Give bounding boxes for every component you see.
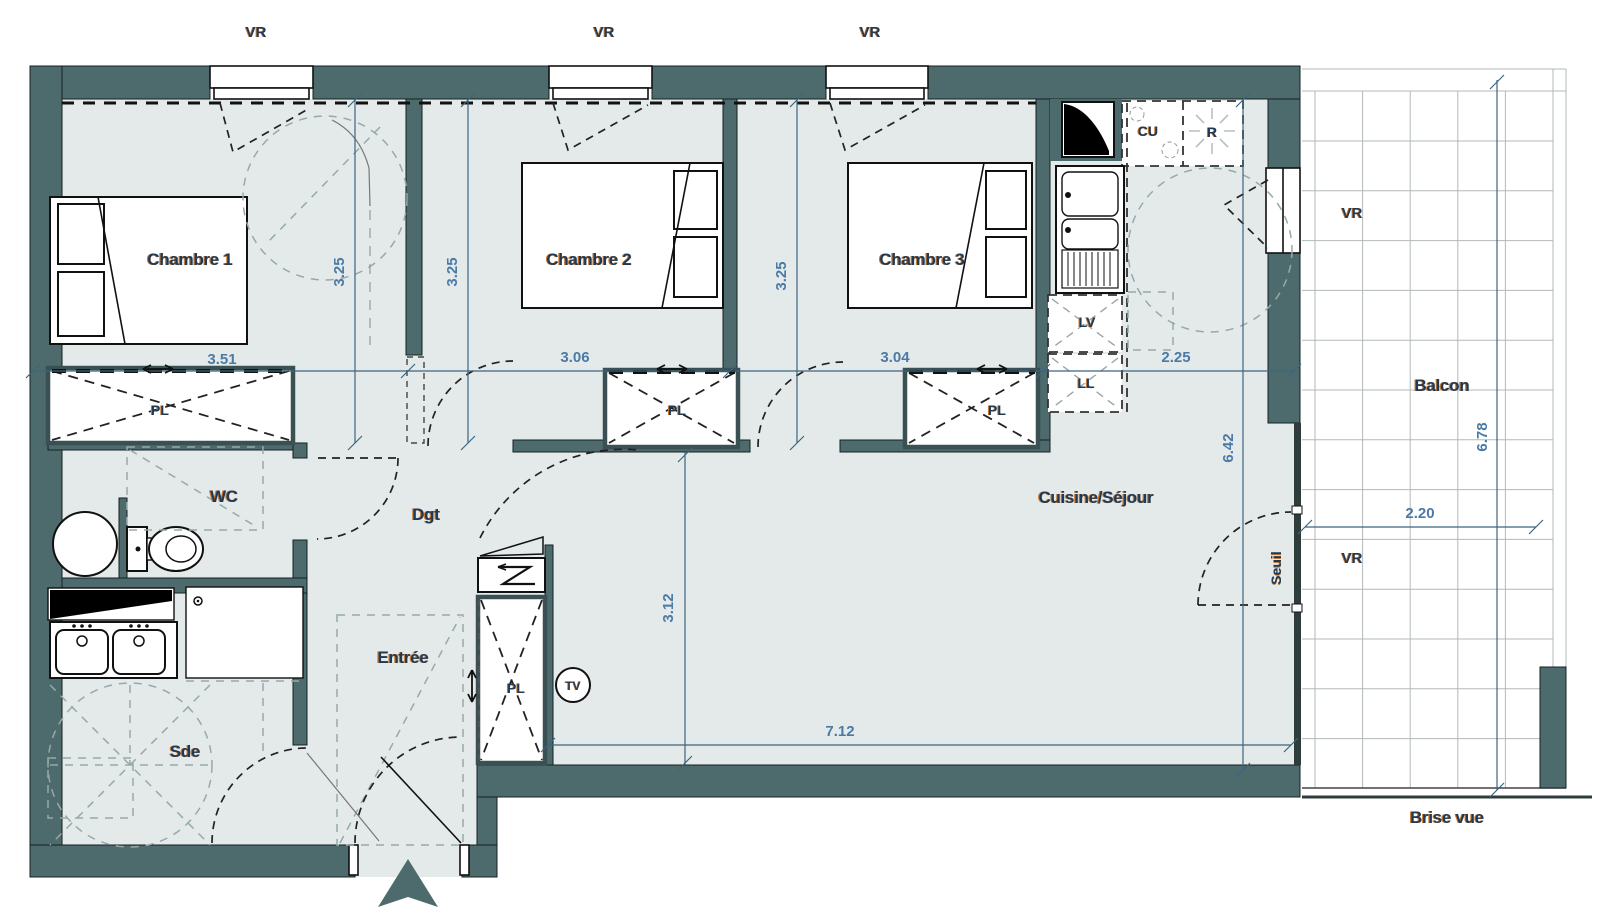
closet-chambre3: [905, 370, 1038, 447]
dim-chambre3-width: 3.04: [880, 349, 910, 366]
wall-top-2: [313, 66, 549, 99]
window-chambre2: [549, 66, 652, 99]
closet-label-pl2: PL: [668, 402, 686, 418]
window-chambre3: [826, 66, 928, 99]
kitchen-corner-unit: [1050, 99, 1122, 161]
seuil-jamb-bottom: [1292, 604, 1302, 612]
floor-entry-wing: [62, 765, 477, 845]
dim-chambre3-depth: 3.25: [773, 261, 790, 290]
wall-wc-stub: [119, 498, 127, 578]
dim-sejour-length: 6.42: [1220, 433, 1237, 462]
dim-chambre2-width: 3.06: [560, 349, 589, 366]
room-label-entree: Entrée: [377, 648, 428, 667]
vr-label-balcony-upper: VR: [1342, 205, 1363, 222]
appliance-label-cu: CU: [1138, 123, 1158, 139]
dim-chambre1-width: 3.51: [207, 351, 236, 368]
bed-chambre3: [848, 163, 1032, 308]
entry-door-jamb-right: [460, 845, 469, 875]
wall-top-3: [652, 66, 826, 99]
dim-balcon-length: 6.78: [1474, 422, 1491, 451]
dim-chambre1-depth: 3.25: [331, 257, 348, 286]
balcony: [1302, 69, 1592, 797]
vr-label-balcony-lower: VR: [1342, 550, 1363, 567]
dim-kitchen-width: 2.25: [1161, 349, 1190, 366]
wall-left: [30, 66, 62, 877]
closet-label-pl3: PL: [988, 402, 1006, 418]
pillow: [58, 204, 104, 264]
appliance-label-ll: LL: [1077, 375, 1095, 391]
label-seuil: Seuil: [1268, 551, 1284, 584]
room-label-wc: WC: [210, 487, 238, 506]
sde-shower: [186, 587, 303, 678]
dim-chambre2-depth: 3.25: [444, 257, 461, 286]
wall-top-4: [928, 66, 1300, 99]
vr-label-window3: VR: [860, 24, 881, 41]
tv-outlet: TV: [556, 668, 590, 702]
bed-chambre1: [50, 197, 247, 344]
room-label-dgt: Dgt: [412, 505, 440, 524]
tv-label: TV: [565, 679, 580, 693]
appliance-label-lv: LV: [1079, 314, 1097, 330]
appliance-label-r: R: [1207, 124, 1217, 140]
seuil-jamb-top: [1292, 506, 1302, 514]
electrical-panel: [478, 558, 545, 592]
dim-balcon-width: 2.20: [1405, 505, 1434, 522]
vr-label-window1: VR: [246, 24, 267, 41]
wc-washbasin: [53, 512, 117, 576]
sde-vanity: [48, 588, 177, 678]
wall-bay-frame: [1294, 423, 1301, 765]
closet-chambre1: [48, 368, 293, 443]
dim-sejour-width: 7.12: [825, 723, 854, 740]
pillow: [986, 237, 1026, 297]
room-label-chambre3: Chambre 3: [879, 250, 964, 269]
pillow: [986, 171, 1026, 229]
window-sejour-right: [1266, 168, 1300, 253]
wall-right-mid: [1268, 253, 1300, 423]
room-label-sde: Sde: [170, 742, 200, 761]
wall-bottom-main: [477, 765, 1300, 797]
entry-door-jamb-left: [349, 845, 358, 875]
floor-plan-drawing: TV: [0, 0, 1600, 919]
vr-label-window2: VR: [594, 24, 615, 41]
room-label-chambre1: Chambre 1: [147, 250, 232, 269]
closet-label-pl1: PL: [151, 402, 169, 418]
kitchen-sink: [1056, 166, 1124, 293]
wall-bottom-left: [30, 845, 355, 877]
window-chambre1: [210, 66, 313, 99]
wall-ch1-ch2: [406, 99, 422, 355]
balcony-wall-block: [1540, 667, 1566, 788]
balcony-tile-grid: [1302, 91, 1553, 788]
closet-label-pl-entree: PL: [507, 680, 525, 696]
balcony-railing: [1302, 69, 1566, 788]
label-brise-vue: Brise vue: [1410, 808, 1484, 827]
wc-toilet: [127, 527, 203, 571]
pillow: [58, 272, 104, 336]
room-label-cuisine-sejour: Cuisine/Séjour: [1039, 488, 1155, 507]
wall-right-upper: [1268, 99, 1300, 170]
room-label-balcon: Balcon: [1415, 376, 1470, 395]
room-label-chambre2: Chambre 2: [546, 250, 631, 269]
dim-sejour-depth: 3.12: [660, 593, 677, 622]
floor-plan-page: TV: [0, 0, 1600, 919]
pillow: [674, 171, 717, 229]
bed-chambre2: [522, 163, 723, 308]
pillow: [674, 237, 717, 297]
